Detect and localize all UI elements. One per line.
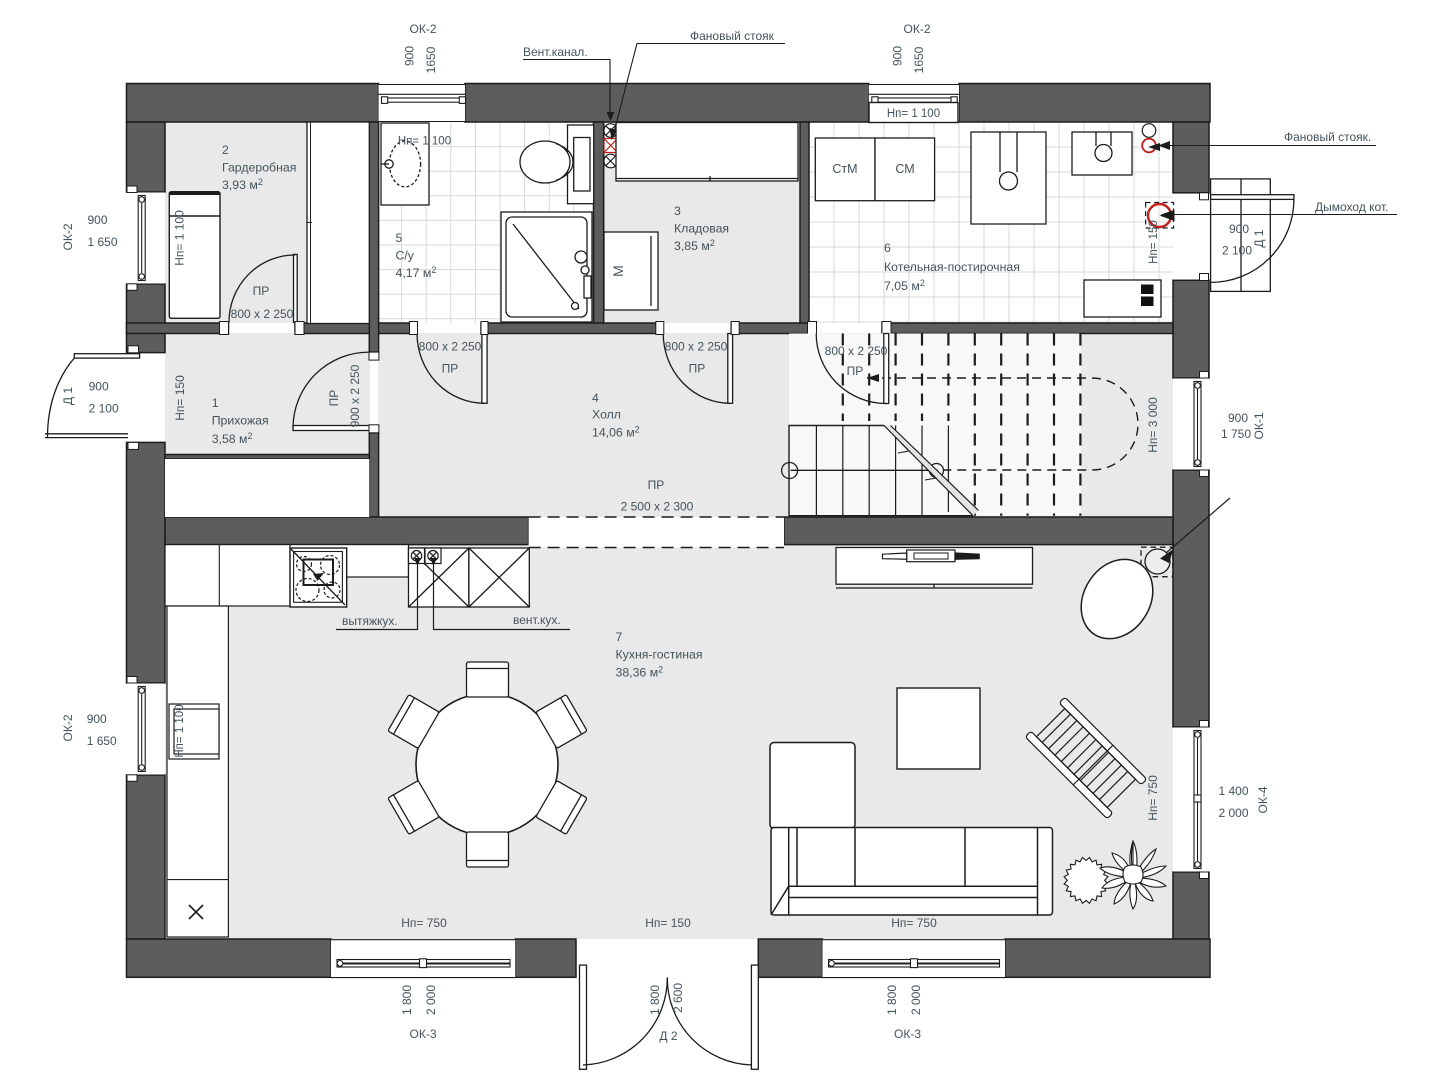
svg-text:ОК-3: ОК-3 (894, 1027, 921, 1041)
svg-text:Нп= 1 100: Нп= 1 100 (173, 210, 187, 266)
svg-text:6: 6 (884, 241, 891, 255)
svg-text:800 x 2 250: 800 x 2 250 (665, 340, 728, 354)
svg-text:3,85 м2: 3,85 м2 (674, 238, 715, 253)
svg-text:2: 2 (222, 143, 229, 157)
svg-text:Нп= 1 100: Нп= 1 100 (398, 136, 451, 148)
svg-text:ОК-3: ОК-3 (410, 1027, 437, 1041)
svg-text:М: М (610, 265, 626, 277)
svg-text:Нп= 1 100: Нп= 1 100 (887, 108, 940, 120)
svg-text:2 600: 2 600 (671, 983, 685, 1013)
svg-text:ПР: ПР (327, 390, 341, 407)
svg-text:ОК-4: ОК-4 (1256, 786, 1270, 813)
svg-text:1650: 1650 (912, 46, 926, 73)
svg-text:1 400: 1 400 (1218, 784, 1248, 798)
svg-text:2 000: 2 000 (909, 985, 923, 1015)
svg-text:Прихожая: Прихожая (212, 414, 269, 428)
svg-text:3,58 м2: 3,58 м2 (212, 431, 253, 446)
svg-text:ПР: ПР (689, 362, 706, 376)
svg-text:Фановый стояк.: Фановый стояк. (1284, 130, 1371, 144)
svg-text:2 100: 2 100 (89, 402, 119, 416)
svg-text:Нп= 1 100: Нп= 1 100 (174, 704, 186, 757)
svg-text:ПР: ПР (847, 364, 864, 378)
svg-text:С/у: С/у (396, 249, 415, 263)
svg-text:СтМ: СтМ (832, 162, 857, 176)
svg-text:Нп= 3 000: Нп= 3 000 (1146, 397, 1160, 453)
svg-text:900: 900 (1228, 411, 1248, 425)
svg-text:900: 900 (89, 380, 109, 394)
svg-text:Д 1: Д 1 (61, 387, 75, 405)
svg-text:Д 2: Д 2 (659, 1029, 677, 1043)
svg-text:1 650: 1 650 (88, 235, 118, 249)
svg-text:4: 4 (592, 391, 599, 405)
svg-text:вент.кух.: вент.кух. (513, 613, 561, 627)
svg-text:800 x 2 250: 800 x 2 250 (419, 340, 482, 354)
svg-text:ПР: ПР (253, 284, 270, 298)
svg-text:1: 1 (212, 396, 219, 410)
svg-text:Hп= 750: Hп= 750 (401, 916, 447, 930)
svg-text:Кладовая: Кладовая (674, 222, 729, 236)
svg-text:Вент.канал.: Вент.канал. (523, 45, 588, 59)
svg-text:1 750: 1 750 (1221, 427, 1251, 441)
svg-text:900: 900 (1229, 222, 1249, 236)
svg-text:Нп= 150: Нп= 150 (173, 375, 187, 421)
svg-text:4,17 м2: 4,17 м2 (396, 265, 437, 280)
svg-text:Холл: Холл (592, 408, 621, 422)
svg-text:Котельная-постирочная: Котельная-постирочная (884, 260, 1020, 274)
svg-text:ОК-2: ОК-2 (61, 714, 75, 741)
svg-text:5: 5 (396, 231, 403, 245)
svg-text:3: 3 (674, 204, 681, 218)
svg-text:900: 900 (891, 46, 905, 66)
svg-text:Фановый стояк: Фановый стояк (690, 29, 775, 43)
svg-text:ПР: ПР (442, 362, 459, 376)
svg-text:1 650: 1 650 (87, 734, 117, 748)
svg-text:СМ: СМ (895, 162, 914, 176)
svg-text:7: 7 (616, 630, 623, 644)
svg-text:800 x 2 250: 800 x 2 250 (825, 344, 888, 358)
svg-text:900: 900 (403, 46, 417, 66)
svg-text:2 000: 2 000 (1218, 806, 1248, 820)
svg-text:14,06 м2: 14,06 м2 (592, 425, 640, 440)
svg-text:Hп= 150: Hп= 150 (645, 916, 691, 930)
svg-text:2 100: 2 100 (1222, 244, 1252, 258)
svg-text:Дымоход кот.: Дымоход кот. (1315, 200, 1388, 214)
svg-text:900: 900 (88, 213, 108, 227)
svg-text:Кухня-гостиная: Кухня-гостиная (616, 648, 703, 662)
svg-text:7,05 м2: 7,05 м2 (884, 278, 925, 293)
svg-text:Hп= 750: Hп= 750 (1146, 775, 1160, 821)
svg-text:Hп= 750: Hп= 750 (891, 916, 937, 930)
svg-text:1 800: 1 800 (648, 985, 662, 1015)
svg-text:38,36 м2: 38,36 м2 (616, 665, 664, 680)
svg-text:ОК-2: ОК-2 (410, 22, 437, 36)
svg-text:вытяжкух.: вытяжкух. (342, 614, 398, 628)
svg-text:2 000: 2 000 (424, 985, 438, 1015)
svg-text:900 x 2 250: 900 x 2 250 (348, 364, 362, 427)
svg-text:2 500 x 2 300: 2 500 x 2 300 (621, 500, 694, 514)
svg-text:ОК-2: ОК-2 (61, 223, 75, 250)
svg-text:900: 900 (87, 712, 107, 726)
svg-text:Гардеробная: Гардеробная (222, 161, 296, 175)
svg-text:Д 1: Д 1 (1252, 229, 1266, 247)
svg-text:Нп= 150: Нп= 150 (1148, 220, 1160, 264)
svg-text:800 x 2 250: 800 x 2 250 (231, 307, 294, 321)
svg-text:ПР: ПР (648, 478, 665, 492)
svg-text:ОК-1: ОК-1 (1252, 412, 1266, 439)
svg-text:1 800: 1 800 (885, 985, 899, 1015)
svg-text:ОК-2: ОК-2 (904, 22, 931, 36)
svg-text:3,93 м2: 3,93 м2 (222, 177, 263, 192)
svg-text:1 800: 1 800 (400, 985, 414, 1015)
svg-text:1650: 1650 (424, 46, 438, 73)
